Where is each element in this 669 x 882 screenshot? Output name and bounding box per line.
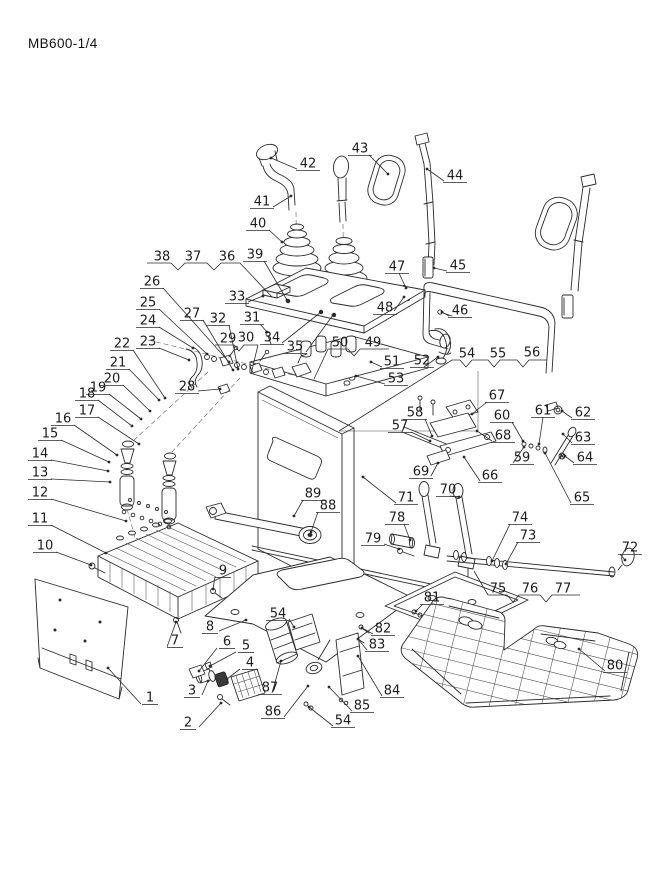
callout-54: 54 bbox=[308, 706, 355, 729]
svg-text:24: 24 bbox=[140, 314, 157, 329]
svg-text:26: 26 bbox=[144, 275, 161, 290]
svg-text:11: 11 bbox=[32, 512, 49, 527]
svg-text:60: 60 bbox=[494, 409, 511, 424]
svg-text:55: 55 bbox=[490, 347, 507, 362]
svg-text:81: 81 bbox=[424, 591, 441, 606]
svg-text:74: 74 bbox=[512, 511, 529, 526]
callout-66: 66 bbox=[463, 456, 502, 484]
svg-text:29: 29 bbox=[220, 332, 237, 347]
svg-text:49: 49 bbox=[365, 336, 382, 351]
svg-text:28: 28 bbox=[179, 380, 196, 395]
callout-3: 3 bbox=[184, 680, 209, 699]
callout-28: 28 bbox=[175, 380, 221, 395]
svg-text:5: 5 bbox=[242, 639, 250, 654]
svg-text:41: 41 bbox=[254, 195, 271, 210]
callout-73: 73 bbox=[505, 529, 540, 566]
svg-text:52: 52 bbox=[414, 354, 431, 369]
svg-text:22: 22 bbox=[114, 337, 131, 352]
svg-text:32: 32 bbox=[210, 312, 227, 327]
svg-text:44: 44 bbox=[447, 169, 464, 184]
diagram-sheet: 1234567891011121314151617181920212223242… bbox=[0, 0, 669, 882]
svg-text:54: 54 bbox=[459, 347, 476, 362]
diagram-page: MB600-1/4 bbox=[0, 0, 669, 882]
svg-text:9: 9 bbox=[219, 564, 227, 579]
svg-text:10: 10 bbox=[37, 539, 54, 554]
callout-62: 62 bbox=[561, 406, 595, 421]
callout-40: 40 bbox=[246, 217, 283, 244]
callout-10: 10 bbox=[33, 539, 92, 567]
callout-52: 52 bbox=[410, 354, 439, 369]
callout-15: 15 bbox=[38, 427, 110, 464]
svg-text:77: 77 bbox=[555, 582, 572, 597]
svg-text:37: 37 bbox=[185, 250, 202, 265]
svg-text:48: 48 bbox=[377, 301, 394, 316]
svg-text:17: 17 bbox=[79, 404, 96, 419]
svg-text:38: 38 bbox=[154, 250, 171, 265]
callout-75: 75 bbox=[490, 582, 507, 597]
callout-83: 83 bbox=[357, 638, 389, 653]
svg-text:21: 21 bbox=[110, 356, 127, 371]
svg-text:20: 20 bbox=[104, 372, 121, 387]
svg-text:67: 67 bbox=[489, 389, 506, 404]
callout-29: 29 bbox=[220, 332, 237, 347]
svg-text:40: 40 bbox=[250, 217, 267, 232]
callout-50: 50 bbox=[332, 336, 349, 351]
svg-text:2: 2 bbox=[184, 716, 192, 731]
callout-71: 71 bbox=[362, 476, 418, 506]
svg-text:31: 31 bbox=[244, 311, 261, 326]
svg-text:16: 16 bbox=[55, 412, 72, 427]
svg-text:39: 39 bbox=[247, 248, 264, 263]
callout-76: 76 bbox=[522, 582, 539, 597]
callout-49: 49 bbox=[365, 336, 382, 351]
svg-text:76: 76 bbox=[522, 582, 539, 597]
svg-text:89: 89 bbox=[305, 487, 322, 502]
svg-text:57: 57 bbox=[392, 419, 409, 434]
svg-text:62: 62 bbox=[575, 406, 592, 421]
callout-87: 87 bbox=[258, 660, 282, 696]
svg-text:83: 83 bbox=[369, 638, 386, 653]
diagram-artwork bbox=[35, 133, 660, 738]
svg-text:58: 58 bbox=[407, 406, 424, 421]
svg-text:35: 35 bbox=[287, 340, 304, 355]
svg-text:25: 25 bbox=[140, 296, 157, 311]
svg-text:63: 63 bbox=[575, 431, 592, 446]
svg-text:71: 71 bbox=[398, 491, 415, 506]
svg-text:54: 54 bbox=[270, 607, 287, 622]
svg-text:86: 86 bbox=[265, 705, 282, 720]
svg-text:1: 1 bbox=[146, 691, 154, 706]
svg-text:3: 3 bbox=[188, 684, 196, 699]
svg-text:78: 78 bbox=[389, 511, 406, 526]
callout-84: 84 bbox=[357, 655, 404, 699]
svg-text:70: 70 bbox=[440, 483, 457, 498]
svg-text:75: 75 bbox=[490, 582, 507, 597]
callout-36: 36 bbox=[219, 250, 236, 265]
callout-13: 13 bbox=[28, 466, 111, 484]
callout-44: 44 bbox=[426, 168, 467, 184]
callout-55: 55 bbox=[490, 347, 507, 362]
callout-45: 45 bbox=[433, 259, 470, 274]
svg-text:42: 42 bbox=[300, 157, 317, 172]
svg-text:46: 46 bbox=[452, 304, 469, 319]
svg-text:56: 56 bbox=[524, 346, 541, 361]
svg-text:82: 82 bbox=[375, 622, 392, 637]
callout-54: 54 bbox=[459, 347, 476, 362]
callout-59: 59 bbox=[510, 446, 534, 466]
svg-text:8: 8 bbox=[206, 620, 214, 635]
callout-77: 77 bbox=[555, 582, 572, 597]
callout-64: 64 bbox=[564, 451, 597, 466]
svg-text:27: 27 bbox=[184, 307, 201, 322]
svg-text:23: 23 bbox=[140, 335, 157, 350]
callout-69: 69 bbox=[409, 462, 439, 480]
callout-2: 2 bbox=[180, 702, 222, 731]
svg-text:68: 68 bbox=[495, 429, 512, 444]
svg-text:72: 72 bbox=[622, 541, 639, 556]
svg-text:14: 14 bbox=[32, 447, 49, 462]
callout-63: 63 bbox=[562, 431, 595, 446]
callout-46: 46 bbox=[441, 304, 472, 319]
svg-text:7: 7 bbox=[171, 634, 179, 649]
svg-text:73: 73 bbox=[520, 529, 537, 544]
callout-41: 41 bbox=[250, 195, 292, 210]
svg-text:12: 12 bbox=[32, 486, 49, 501]
svg-text:85: 85 bbox=[354, 699, 371, 714]
svg-text:53: 53 bbox=[388, 372, 405, 387]
svg-text:84: 84 bbox=[384, 684, 401, 699]
svg-text:61: 61 bbox=[535, 404, 552, 419]
callout-37: 37 bbox=[185, 250, 202, 265]
svg-text:87: 87 bbox=[262, 681, 279, 696]
callout-20: 20 bbox=[100, 372, 151, 413]
callout-38: 38 bbox=[154, 250, 171, 265]
callout-30: 30 bbox=[238, 331, 255, 346]
svg-text:65: 65 bbox=[574, 491, 591, 506]
callout-6: 6 bbox=[198, 635, 235, 673]
svg-text:80: 80 bbox=[607, 659, 624, 674]
svg-text:64: 64 bbox=[577, 451, 594, 466]
svg-text:51: 51 bbox=[384, 355, 401, 370]
svg-text:6: 6 bbox=[223, 635, 231, 650]
svg-text:59: 59 bbox=[514, 451, 531, 466]
svg-text:45: 45 bbox=[450, 259, 467, 274]
callout-56: 56 bbox=[524, 346, 541, 361]
svg-text:34: 34 bbox=[264, 331, 281, 346]
svg-text:79: 79 bbox=[365, 532, 382, 547]
svg-text:36: 36 bbox=[219, 250, 236, 265]
svg-text:69: 69 bbox=[413, 465, 430, 480]
svg-text:43: 43 bbox=[352, 142, 369, 157]
bracket-38-37-36 bbox=[147, 263, 272, 297]
svg-text:54: 54 bbox=[335, 714, 352, 729]
callout-7: 7 bbox=[167, 621, 183, 649]
svg-text:30: 30 bbox=[238, 331, 255, 346]
svg-text:66: 66 bbox=[482, 469, 499, 484]
svg-text:50: 50 bbox=[332, 336, 349, 351]
svg-text:4: 4 bbox=[246, 656, 254, 671]
svg-text:13: 13 bbox=[32, 466, 49, 481]
svg-text:33: 33 bbox=[229, 290, 246, 305]
svg-text:15: 15 bbox=[42, 427, 59, 442]
svg-text:47: 47 bbox=[389, 260, 406, 275]
